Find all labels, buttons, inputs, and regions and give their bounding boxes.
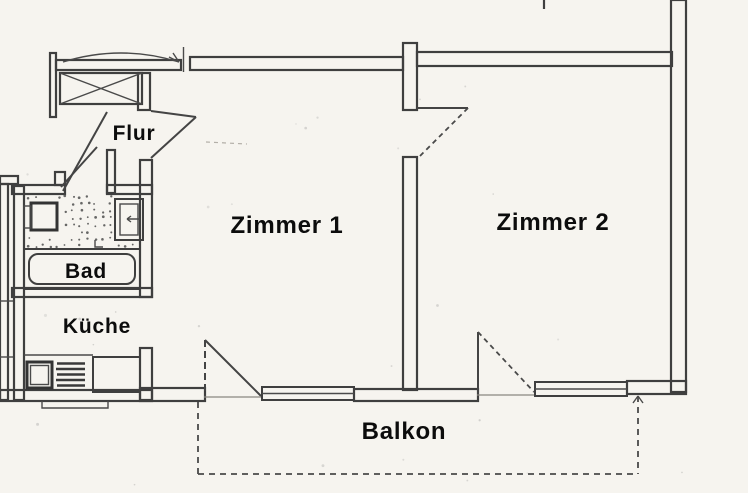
worktop	[93, 357, 140, 392]
wall-far-left	[0, 184, 8, 400]
basin-outline	[31, 203, 57, 230]
wall-inner-left	[14, 186, 24, 400]
wall-divider-upper	[403, 43, 417, 110]
door-zimmer2	[417, 108, 468, 156]
window-zimmer1	[262, 387, 354, 400]
room-label-bad: Bad	[65, 260, 107, 283]
scan-noise	[26, 86, 682, 486]
door-swing	[478, 332, 534, 392]
wall-flur-zimmer1	[140, 160, 152, 297]
room-label-flur: Flur	[113, 122, 156, 145]
floor-plan: Flur Bad Küche Zimmer 1 Zimmer 2 Balkon	[0, 0, 748, 493]
crossed-shaft-box	[60, 73, 142, 104]
toilet	[115, 199, 143, 240]
wash-basin	[24, 203, 57, 230]
wall-kueche-right-stub	[140, 348, 152, 400]
balcony-door-zimmer1	[204, 340, 262, 397]
wall-bad-door-jamb	[107, 150, 115, 193]
window-zimmer2	[535, 382, 627, 396]
door-entry-diagonal-2	[61, 147, 97, 187]
wall-top-entry	[56, 60, 181, 70]
room-label-kueche: Küche	[63, 315, 131, 338]
floor-plan-drawing: Flur Bad Küche Zimmer 1 Zimmer 2 Balkon	[0, 0, 748, 493]
faint-dash-mark	[206, 142, 247, 144]
door-flur-zimmer1-top	[151, 111, 196, 117]
bath-notch	[95, 240, 103, 247]
door-flur-zimmer1-diagonal	[151, 117, 196, 158]
kitchen-sink-inner	[31, 366, 49, 385]
wall-divider-lower	[403, 157, 417, 390]
walls	[0, 0, 686, 408]
room-label-zimmer2: Zimmer 2	[496, 209, 609, 236]
wall-top-zimmer2	[417, 52, 672, 66]
wall-right-outer	[671, 0, 686, 392]
balcony-door-zimmer2	[477, 332, 535, 395]
door-zimmer2-swing	[420, 108, 468, 156]
kitchen-fixtures	[24, 355, 140, 392]
door-swing-diagonal	[205, 340, 261, 396]
room-label-zimmer1: Zimmer 1	[230, 212, 343, 239]
room-label-balkon: Balkon	[362, 418, 447, 445]
stove	[56, 364, 85, 386]
door-entry-diagonal-1	[63, 112, 107, 191]
wall-top-zimmer1	[190, 57, 403, 70]
wall-left-strip-top	[0, 176, 18, 184]
